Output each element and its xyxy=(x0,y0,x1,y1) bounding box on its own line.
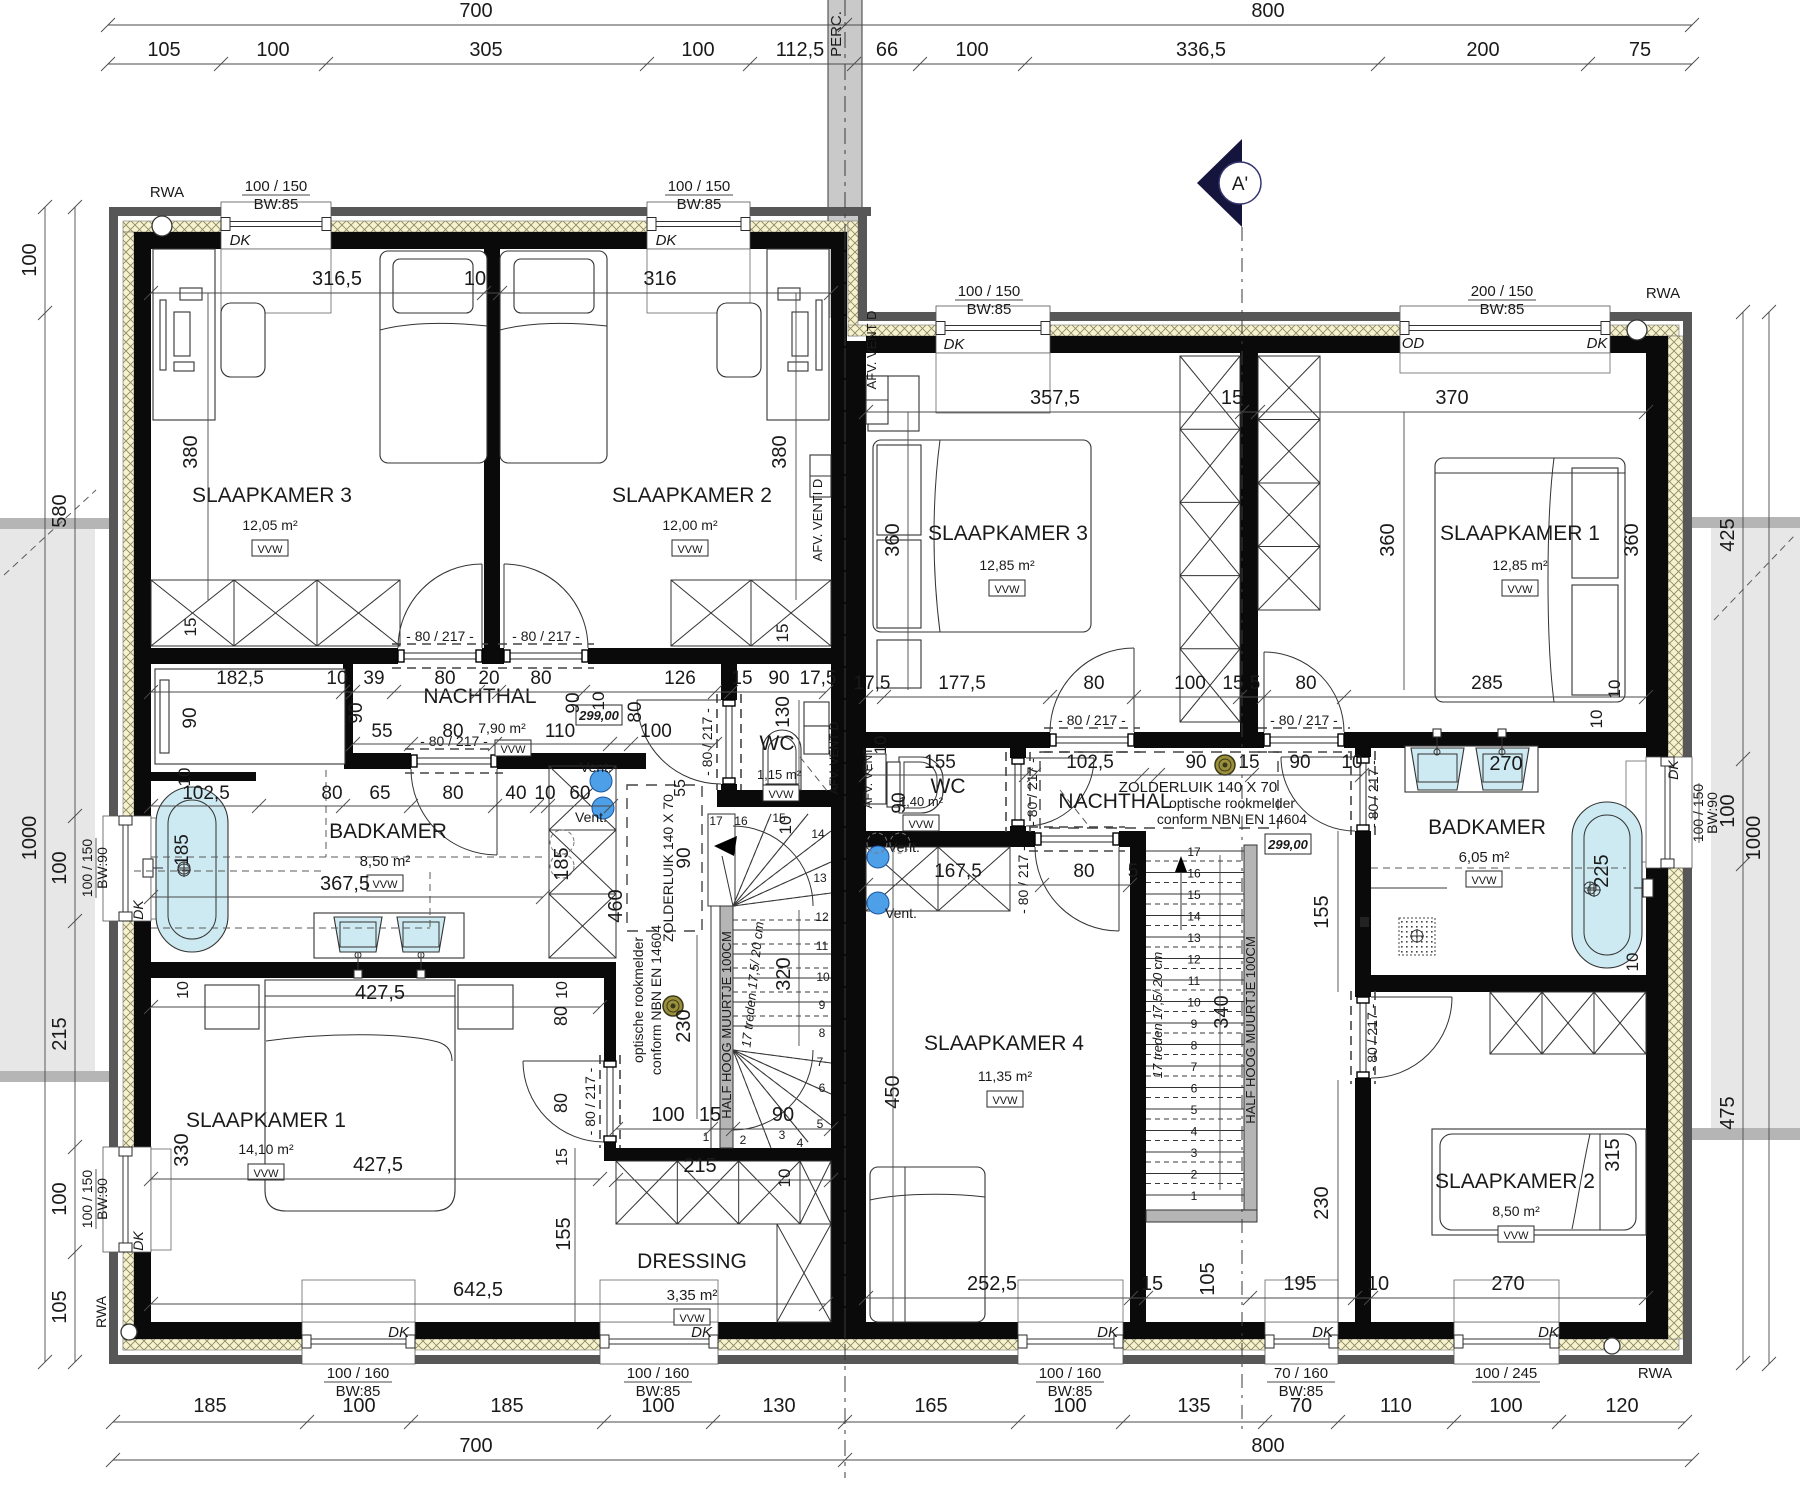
svg-text:6: 6 xyxy=(819,1081,826,1095)
svg-text:BW:85: BW:85 xyxy=(636,1383,681,1400)
svg-text:100: 100 xyxy=(1174,673,1206,694)
svg-text:10: 10 xyxy=(534,783,555,804)
svg-text:7: 7 xyxy=(1191,1060,1198,1074)
svg-text:10: 10 xyxy=(775,1169,794,1188)
svg-text:10: 10 xyxy=(554,981,571,999)
svg-text:- 80 / 217 -: - 80 / 217 - xyxy=(1058,712,1126,728)
svg-text:BW:85: BW:85 xyxy=(967,301,1012,318)
svg-text:17 treden 17,5/ 20 cm: 17 treden 17,5/ 20 cm xyxy=(1150,952,1165,1079)
svg-text:VVW: VVW xyxy=(992,1095,1018,1107)
svg-text:90: 90 xyxy=(1289,752,1310,773)
svg-text:100 / 150: 100 / 150 xyxy=(79,839,95,898)
svg-text:100 / 160: 100 / 160 xyxy=(327,1365,390,1382)
svg-text:BW:85: BW:85 xyxy=(1048,1383,1093,1400)
svg-text:230: 230 xyxy=(1311,1186,1333,1219)
svg-text:SLAAPKAMER 2: SLAAPKAMER 2 xyxy=(1435,1170,1595,1193)
svg-text:100 / 150: 100 / 150 xyxy=(958,283,1021,300)
svg-text:16: 16 xyxy=(1187,867,1201,881)
svg-text:185: 185 xyxy=(551,847,573,880)
svg-text:17,5: 17,5 xyxy=(800,668,837,689)
svg-text:12,85 m²: 12,85 m² xyxy=(1492,557,1548,573)
svg-text:RWA: RWA xyxy=(93,1295,109,1328)
svg-text:12: 12 xyxy=(815,910,829,924)
svg-text:130: 130 xyxy=(762,1395,795,1417)
svg-text:100 / 160: 100 / 160 xyxy=(627,1365,690,1382)
svg-text:700: 700 xyxy=(459,1435,492,1457)
svg-text:AFV. VENTI D: AFV. VENTI D xyxy=(810,479,825,562)
svg-text:90: 90 xyxy=(772,1104,794,1126)
svg-text:200 / 150: 200 / 150 xyxy=(1471,283,1534,300)
svg-text:90: 90 xyxy=(563,692,584,713)
svg-text:315: 315 xyxy=(1602,1138,1624,1171)
svg-text:DK: DK xyxy=(1587,335,1609,352)
svg-text:13: 13 xyxy=(813,871,827,885)
svg-text:195: 195 xyxy=(1283,1273,1316,1295)
svg-text:VVW: VVW xyxy=(1471,875,1497,887)
svg-text:A': A' xyxy=(1232,174,1248,195)
svg-text:357,5: 357,5 xyxy=(1030,387,1080,409)
svg-text:100: 100 xyxy=(49,851,71,884)
svg-text:15: 15 xyxy=(731,668,752,689)
svg-text:15: 15 xyxy=(1221,387,1243,409)
svg-text:Vent.: Vent. xyxy=(575,809,607,825)
svg-text:8: 8 xyxy=(1191,1039,1198,1053)
svg-text:100: 100 xyxy=(955,39,988,61)
svg-text:Vent.: Vent. xyxy=(885,905,917,921)
svg-text:475: 475 xyxy=(1717,1096,1739,1129)
svg-text:80: 80 xyxy=(530,668,551,689)
svg-text:1: 1 xyxy=(1191,1189,1198,1203)
svg-text:SLAAPKAMER 1: SLAAPKAMER 1 xyxy=(1440,522,1600,545)
svg-text:VVW: VVW xyxy=(253,1168,279,1180)
svg-text:9: 9 xyxy=(1191,1017,1198,1031)
svg-text:16: 16 xyxy=(734,814,748,828)
svg-text:100: 100 xyxy=(1489,1395,1522,1417)
svg-text:10: 10 xyxy=(1587,710,1606,729)
svg-text:105: 105 xyxy=(147,39,180,61)
svg-text:12,85 m²: 12,85 m² xyxy=(979,557,1035,573)
svg-text:252,5: 252,5 xyxy=(967,1273,1017,1295)
svg-text:DK: DK xyxy=(130,1231,146,1251)
svg-text:155: 155 xyxy=(1311,895,1333,928)
svg-text:1000: 1000 xyxy=(19,816,41,861)
svg-text:336,5: 336,5 xyxy=(1176,39,1226,61)
svg-text:- 80 / 217 -: - 80 / 217 - xyxy=(406,628,474,644)
svg-text:3: 3 xyxy=(1191,1146,1198,1160)
svg-text:DK: DK xyxy=(1312,1324,1334,1341)
svg-text:10: 10 xyxy=(1187,996,1201,1010)
svg-text:110: 110 xyxy=(545,721,575,742)
svg-text:167,5: 167,5 xyxy=(934,861,982,882)
svg-text:8,50 m²: 8,50 m² xyxy=(1492,1203,1540,1219)
svg-text:BW:90: BW:90 xyxy=(94,847,110,889)
svg-text:55: 55 xyxy=(371,721,392,742)
svg-text:100: 100 xyxy=(49,1182,71,1215)
svg-text:370: 370 xyxy=(1435,387,1468,409)
svg-text:305: 305 xyxy=(469,39,502,61)
svg-text:80: 80 xyxy=(442,721,463,742)
svg-text:155: 155 xyxy=(553,1217,575,1250)
svg-text:65: 65 xyxy=(369,783,390,804)
svg-text:VVW: VVW xyxy=(677,544,703,556)
svg-text:90: 90 xyxy=(1185,752,1206,773)
svg-text:PERC.: PERC. xyxy=(828,11,845,57)
svg-text:270: 270 xyxy=(1489,753,1522,775)
svg-text:110: 110 xyxy=(1380,1395,1412,1417)
svg-text:15: 15 xyxy=(181,618,200,637)
svg-text:HALF HOOG MUURTJE 100CM: HALF HOOG MUURTJE 100CM xyxy=(719,931,734,1119)
svg-text:316: 316 xyxy=(643,268,676,290)
svg-text:100 / 150: 100 / 150 xyxy=(245,178,308,195)
svg-text:AFV. VENT: AFV. VENT xyxy=(861,747,875,809)
svg-text:15: 15 xyxy=(1222,673,1243,694)
svg-text:SLAAPKAMER 3: SLAAPKAMER 3 xyxy=(928,522,1088,545)
svg-text:320: 320 xyxy=(773,957,795,990)
svg-text:360: 360 xyxy=(1377,523,1399,556)
svg-text:165: 165 xyxy=(914,1395,947,1417)
svg-text:155: 155 xyxy=(924,752,956,773)
svg-text:39: 39 xyxy=(363,668,384,689)
svg-text:105: 105 xyxy=(49,1290,71,1323)
svg-text:2: 2 xyxy=(740,1133,747,1147)
svg-text:- 80 / 217 -: - 80 / 217 - xyxy=(512,628,580,644)
svg-text:12,00 m²: 12,00 m² xyxy=(662,517,718,533)
svg-text:367,5: 367,5 xyxy=(320,873,370,895)
svg-text:BW:85: BW:85 xyxy=(336,1383,381,1400)
svg-text:10: 10 xyxy=(1605,680,1624,699)
svg-text:75: 75 xyxy=(1629,39,1651,61)
svg-text:14,10 m²: 14,10 m² xyxy=(238,1141,294,1157)
svg-text:DK: DK xyxy=(656,232,678,249)
svg-text:100 / 150: 100 / 150 xyxy=(79,1170,95,1229)
svg-text:90: 90 xyxy=(180,707,201,728)
svg-text:299,00: 299,00 xyxy=(1267,837,1309,852)
svg-text:17: 17 xyxy=(1187,845,1201,859)
svg-text:80: 80 xyxy=(551,1006,571,1026)
svg-text:330: 330 xyxy=(171,1133,193,1166)
svg-text:BW:85: BW:85 xyxy=(1480,301,1525,318)
svg-text:conform NBN EN 14604: conform NBN EN 14604 xyxy=(1157,811,1307,827)
svg-text:RWA: RWA xyxy=(1638,1365,1672,1382)
svg-text:VVW: VVW xyxy=(1507,584,1533,596)
svg-text:13: 13 xyxy=(1187,931,1201,945)
svg-text:10: 10 xyxy=(816,970,830,984)
svg-text:3: 3 xyxy=(779,1128,786,1142)
svg-text:DK: DK xyxy=(691,1324,713,1341)
svg-text:DRESSING: DRESSING xyxy=(637,1250,747,1273)
svg-text:270: 270 xyxy=(1491,1273,1524,1295)
svg-text:40: 40 xyxy=(505,783,526,804)
svg-text:80: 80 xyxy=(1083,673,1104,694)
svg-text:- 80 / 217 -: - 80 / 217 - xyxy=(699,708,715,776)
svg-text:66: 66 xyxy=(876,39,898,61)
svg-text:11,35 m²: 11,35 m² xyxy=(978,1068,1033,1084)
svg-text:BW:85: BW:85 xyxy=(1279,1383,1324,1400)
svg-text:185: 185 xyxy=(193,1395,226,1417)
svg-text:55: 55 xyxy=(672,779,689,797)
svg-text:BW:85: BW:85 xyxy=(254,196,299,213)
svg-text:17,5: 17,5 xyxy=(854,673,891,694)
svg-text:SLAAPKAMER 3: SLAAPKAMER 3 xyxy=(192,484,352,507)
svg-text:- 80 / 217 -: - 80 / 217 - xyxy=(1364,1003,1380,1071)
svg-text:BW:85: BW:85 xyxy=(677,196,722,213)
svg-text:5: 5 xyxy=(1128,861,1139,882)
svg-text:3,35 m²: 3,35 m² xyxy=(667,1287,718,1304)
svg-text:700: 700 xyxy=(459,0,492,22)
svg-text:OD: OD xyxy=(1402,335,1425,352)
svg-text:15: 15 xyxy=(554,1148,571,1166)
svg-text:2: 2 xyxy=(1191,1168,1198,1182)
svg-text:105: 105 xyxy=(1197,1262,1219,1295)
svg-text:- 80 / 217 -: - 80 / 217 - xyxy=(1024,758,1040,826)
svg-text:130: 130 xyxy=(773,696,794,728)
svg-text:427,5: 427,5 xyxy=(355,982,405,1004)
svg-text:100 / 245: 100 / 245 xyxy=(1475,1365,1538,1382)
svg-text:100 / 150: 100 / 150 xyxy=(668,178,731,195)
svg-text:90: 90 xyxy=(768,668,789,689)
svg-text:VVW: VVW xyxy=(679,1313,705,1325)
svg-text:5: 5 xyxy=(1191,1103,1198,1117)
svg-text:15: 15 xyxy=(1187,888,1201,902)
svg-text:102,5: 102,5 xyxy=(1066,752,1114,773)
svg-text:10: 10 xyxy=(464,268,486,290)
svg-text:215: 215 xyxy=(683,1155,716,1177)
svg-text:10: 10 xyxy=(326,668,347,689)
svg-text:Vent.: Vent. xyxy=(580,759,612,775)
svg-text:580: 580 xyxy=(49,494,71,527)
svg-text:- 80 / 217 -: - 80 / 217 - xyxy=(582,1067,598,1135)
svg-text:380: 380 xyxy=(180,435,202,468)
svg-text:DK: DK xyxy=(130,900,146,920)
svg-text:12: 12 xyxy=(1187,953,1201,967)
svg-text:177,5: 177,5 xyxy=(938,673,986,694)
svg-text:90: 90 xyxy=(674,847,695,868)
svg-text:8,50 m²: 8,50 m² xyxy=(360,853,411,870)
svg-text:1: 1 xyxy=(703,1130,710,1144)
svg-text:14: 14 xyxy=(811,827,825,841)
svg-text:10: 10 xyxy=(1623,953,1642,972)
svg-text:SLAAPKAMER 4: SLAAPKAMER 4 xyxy=(924,1032,1084,1055)
svg-text:427,5: 427,5 xyxy=(353,1154,403,1176)
svg-text:70 / 160: 70 / 160 xyxy=(1274,1365,1328,1382)
svg-text:DK: DK xyxy=(388,1324,410,1341)
svg-text:SLAAPKAMER 1: SLAAPKAMER 1 xyxy=(186,1109,346,1132)
svg-text:185: 185 xyxy=(490,1395,523,1417)
svg-text:126: 126 xyxy=(664,668,696,689)
svg-text:VVW: VVW xyxy=(908,819,934,831)
svg-text:10: 10 xyxy=(1341,752,1362,773)
svg-text:10: 10 xyxy=(175,768,194,787)
svg-text:7,90 m²: 7,90 m² xyxy=(478,720,526,736)
svg-text:1000: 1000 xyxy=(1743,816,1765,861)
svg-text:DK: DK xyxy=(944,336,966,353)
svg-text:7: 7 xyxy=(817,1055,824,1069)
svg-text:DK: DK xyxy=(1097,1324,1119,1341)
svg-text:460: 460 xyxy=(605,889,627,922)
svg-text:15: 15 xyxy=(699,1104,721,1126)
svg-text:225: 225 xyxy=(1591,854,1613,887)
svg-text:10: 10 xyxy=(175,981,192,999)
svg-text:VVW: VVW xyxy=(768,789,794,801)
svg-text:340: 340 xyxy=(1211,995,1233,1028)
svg-text:BW:90: BW:90 xyxy=(94,1178,110,1220)
svg-text:360: 360 xyxy=(882,523,904,556)
svg-text:optische rookmelder: optische rookmelder xyxy=(630,937,646,1063)
svg-text:- 80 / 217 -: - 80 / 217 - xyxy=(1015,846,1031,914)
svg-text:RWA: RWA xyxy=(150,184,184,201)
svg-text:14: 14 xyxy=(1187,910,1201,924)
svg-text:AFV. VENT D: AFV. VENT D xyxy=(827,721,841,794)
svg-text:5: 5 xyxy=(1250,673,1261,694)
svg-text:DK: DK xyxy=(1538,1324,1560,1341)
svg-text:4: 4 xyxy=(1191,1125,1198,1139)
svg-text:200: 200 xyxy=(1466,39,1499,61)
svg-text:VVW: VVW xyxy=(1503,1230,1529,1242)
svg-text:6: 6 xyxy=(1191,1082,1198,1096)
svg-text:NACHTHAL: NACHTHAL xyxy=(1058,790,1171,813)
svg-text:120: 120 xyxy=(1605,1395,1638,1417)
svg-text:VVW: VVW xyxy=(257,544,283,556)
svg-text:90: 90 xyxy=(346,702,367,723)
svg-text:135: 135 xyxy=(1177,1395,1210,1417)
svg-text:316,5: 316,5 xyxy=(312,268,362,290)
svg-text:10: 10 xyxy=(1367,1273,1389,1295)
svg-text:182,5: 182,5 xyxy=(216,668,264,689)
svg-text:BADKAMER: BADKAMER xyxy=(1428,816,1546,839)
svg-text:conform NBN EN 14604: conform NBN EN 14604 xyxy=(648,925,664,1075)
svg-text:100: 100 xyxy=(651,1104,684,1126)
svg-text:10: 10 xyxy=(776,816,795,835)
svg-text:360: 360 xyxy=(1621,523,1643,556)
svg-text:WC: WC xyxy=(760,732,795,755)
svg-text:12,05 m²: 12,05 m² xyxy=(242,517,298,533)
svg-text:BW:90: BW:90 xyxy=(1704,792,1720,834)
svg-text:DK: DK xyxy=(1665,760,1681,780)
svg-text:VVW: VVW xyxy=(994,584,1020,596)
svg-text:RWA: RWA xyxy=(1646,285,1680,302)
svg-text:1,15 m²: 1,15 m² xyxy=(757,767,802,782)
svg-text:optische rookmelder: optische rookmelder xyxy=(1169,795,1295,811)
svg-text:100: 100 xyxy=(640,721,672,742)
svg-text:230: 230 xyxy=(673,1009,695,1042)
svg-text:SLAAPKAMER 2: SLAAPKAMER 2 xyxy=(612,484,772,507)
svg-text:80: 80 xyxy=(1295,673,1316,694)
svg-text:100: 100 xyxy=(681,39,714,61)
svg-text:285: 285 xyxy=(1471,673,1503,694)
svg-text:6,05 m²: 6,05 m² xyxy=(1459,849,1510,866)
svg-text:9: 9 xyxy=(819,998,826,1012)
svg-text:100: 100 xyxy=(256,39,289,61)
svg-text:VVW: VVW xyxy=(372,879,398,891)
svg-text:800: 800 xyxy=(1251,1435,1284,1457)
svg-text:20: 20 xyxy=(478,668,499,689)
svg-text:AFV. VENT D: AFV. VENT D xyxy=(864,311,879,390)
svg-text:380: 380 xyxy=(769,435,791,468)
svg-text:10: 10 xyxy=(589,692,608,711)
svg-text:185: 185 xyxy=(172,834,193,866)
svg-text:112,5: 112,5 xyxy=(776,39,825,61)
svg-text:100: 100 xyxy=(1717,794,1739,827)
svg-text:- 80 / 217 -: - 80 / 217 - xyxy=(1270,712,1338,728)
svg-text:100 / 160: 100 / 160 xyxy=(1039,1365,1102,1382)
svg-text:DK: DK xyxy=(230,232,252,249)
svg-text:80: 80 xyxy=(551,1093,571,1113)
svg-text:80: 80 xyxy=(442,783,463,804)
svg-text:800: 800 xyxy=(1251,0,1284,22)
svg-text:VVW: VVW xyxy=(500,744,526,756)
svg-text:60: 60 xyxy=(569,783,590,804)
svg-text:80: 80 xyxy=(625,701,646,722)
svg-text:80: 80 xyxy=(321,783,342,804)
svg-text:BADKAMER: BADKAMER xyxy=(329,820,447,843)
svg-text:215: 215 xyxy=(49,1017,71,1050)
svg-text:15: 15 xyxy=(773,624,792,643)
svg-text:80: 80 xyxy=(434,668,455,689)
svg-text:8: 8 xyxy=(819,1026,826,1040)
svg-text:HALF HOOG MUURTJE 100CM: HALF HOOG MUURTJE 100CM xyxy=(1243,936,1258,1124)
svg-text:15: 15 xyxy=(1141,1273,1163,1295)
svg-text:11: 11 xyxy=(816,939,829,953)
svg-text:80: 80 xyxy=(1073,861,1094,882)
svg-text:17: 17 xyxy=(709,814,723,828)
svg-text:11: 11 xyxy=(1188,974,1201,988)
svg-text:100: 100 xyxy=(19,243,41,276)
svg-text:90: 90 xyxy=(889,792,910,813)
svg-text:425: 425 xyxy=(1717,518,1739,551)
svg-text:642,5: 642,5 xyxy=(453,1279,503,1301)
svg-text:4: 4 xyxy=(797,1136,804,1150)
